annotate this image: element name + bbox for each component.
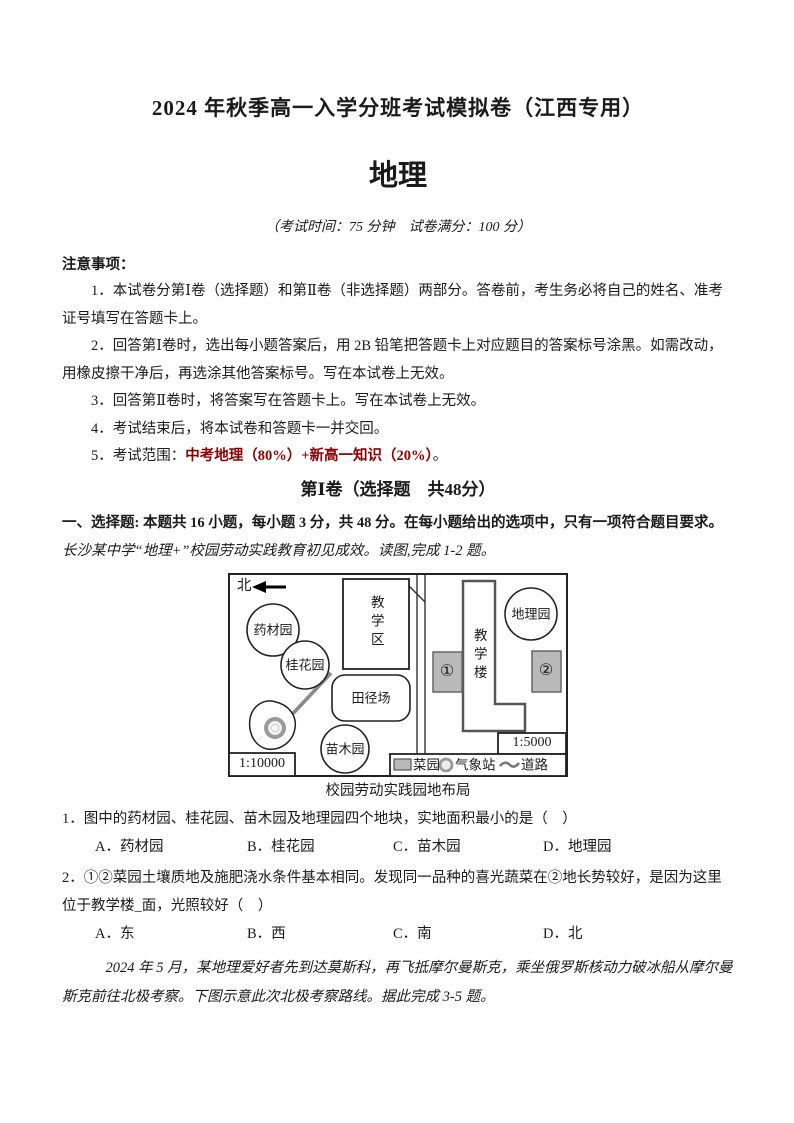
teaching-area-label: 教学区 [369, 595, 383, 651]
section1-heading: 第Ⅰ卷（选择题 共48分） [62, 475, 734, 505]
note-item-3: 3．回答第Ⅱ卷时，将答案写在答题卡上。写在本试卷上无效。 [62, 388, 734, 416]
question-2-option-a: A．东 [95, 920, 247, 948]
question-1-option-c: C．苗木园 [393, 833, 543, 861]
legend-weather-station-icon [440, 759, 452, 771]
note-item-4: 4．考试结束后，将本试卷和答题卡一并交回。 [62, 416, 734, 444]
question-2-options: A．东 B．西 C．南 D．北 [62, 920, 734, 948]
vegetable-plot-2-label: ② [539, 663, 553, 679]
question-1-options: A．药材园 B．桂花园 C．苗木园 D．地理园 [62, 833, 734, 861]
question-1-option-d: D．地理园 [543, 833, 611, 861]
subject-title: 地理 [62, 152, 734, 194]
osmanthus-garden-label: 桂花园 [285, 658, 324, 671]
vegetable-plot-1-label: ① [440, 664, 454, 680]
intro-paragraph: 一、选择题: 本题共 16 小题，每小题 3 分，共 48 分。在每小题给出的选… [62, 509, 734, 565]
legend-vegetable-swatch [394, 759, 411, 770]
note-item-5-suffix: 。 [433, 448, 448, 464]
exam-scope-text: 中考地理（80%）+新高一知识（20%） [185, 448, 433, 464]
intro-kai-text: 长沙某中学“地理+”校园劳动实践教育初见成效。读图,完成 1-2 题。 [62, 543, 495, 559]
weather-station-inner [272, 724, 279, 731]
note-item-5: 5．考试范围：中考地理（80%）+新高一知识（20%）。 [62, 443, 734, 471]
question-1-option-a: A．药材园 [95, 833, 247, 861]
question-2-text: 2．①②菜园土壤质地及施肥浇水条件基本相同。发现同一品种的喜光蔬菜在②地长势较好… [62, 864, 734, 920]
legend-road-label: 道路 [521, 758, 548, 772]
scale-right-label: 1:5000 [513, 736, 552, 750]
scale-left-label: 1:10000 [239, 757, 285, 771]
campus-map-figure: 北 药材园 桂花园 教学区 田径场 苗木园 1:10000 地理园 教学楼 ① … [228, 573, 568, 778]
track-field-label: 田径场 [351, 691, 390, 704]
exam-info: （考试时间：75 分钟 试卷满分：100 分） [62, 216, 734, 236]
note-item-2: 2．回答第Ⅰ卷时，选出每小题答案后，用 2B 铅笔把答题卡上对应题目的答案标号涂… [62, 333, 734, 388]
question-2-option-c: C．南 [393, 920, 543, 948]
exam-paper-page: 2024 年秋季高一入学分班考试模拟卷（江西专用） 地理 （考试时间：75 分钟… [0, 0, 794, 1123]
question-1-text: 1．图中的药材园、桂花园、苗木园及地理园四个地块，实地面积最小的是（ ） [62, 805, 734, 833]
intro-bold-text: 一、选择题: 本题共 16 小题，每小题 3 分，共 48 分。在每小题给出的选… [62, 515, 723, 531]
figure-caption: 校园劳动实践园地布局 [228, 780, 568, 802]
north-label: 北 [237, 579, 252, 594]
note-item-1: 1．本试卷分第Ⅰ卷（选择题）和第Ⅱ卷（非选择题）两部分。答卷前，考生务必将自己的… [62, 278, 734, 333]
legend-weather-station-label: 气象站 [455, 758, 496, 772]
notes-heading: 注意事项： [62, 252, 734, 278]
nursery-garden-label: 苗木园 [325, 742, 364, 755]
closing-paragraph: 2024 年 5 月，某地理爱好者先到达莫斯科，再飞抵摩尔曼斯克，乘坐俄罗斯核动… [62, 954, 734, 1012]
question-2-option-d: D．北 [543, 920, 582, 948]
note-item-5-prefix: 5．考试范围： [91, 448, 185, 464]
question-2-option-b: B．西 [247, 920, 393, 948]
herb-garden-label: 药材园 [253, 623, 292, 636]
legend-vegetable-label: 菜园 [413, 758, 440, 772]
teaching-building-label: 教学楼 [472, 628, 486, 684]
page-title: 2024 年秋季高一入学分班考试模拟卷（江西专用） [62, 92, 734, 122]
geography-garden-label: 地理园 [511, 607, 550, 620]
question-1-option-b: B．桂花园 [247, 833, 393, 861]
